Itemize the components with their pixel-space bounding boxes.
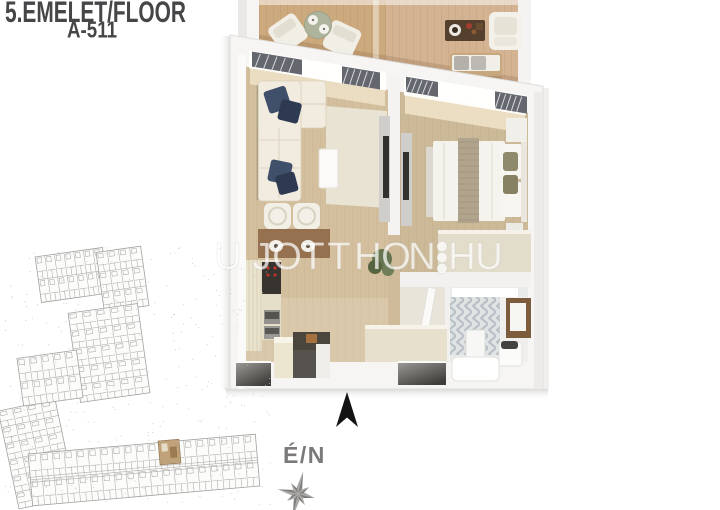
svg-text:O: O — [272, 236, 302, 278]
svg-text:T: T — [301, 236, 324, 278]
svg-text:O: O — [381, 236, 411, 278]
svg-text:U: U — [214, 236, 241, 278]
svg-text:T: T — [327, 236, 350, 278]
svg-text:N: N — [408, 236, 435, 278]
svg-text:U: U — [475, 236, 502, 278]
svg-text:H: H — [354, 236, 381, 278]
svg-text:A-511: A-511 — [67, 17, 117, 43]
svg-text:É/N: É/N — [283, 441, 326, 468]
svg-text:H: H — [448, 236, 475, 278]
svg-text:J: J — [253, 236, 272, 278]
